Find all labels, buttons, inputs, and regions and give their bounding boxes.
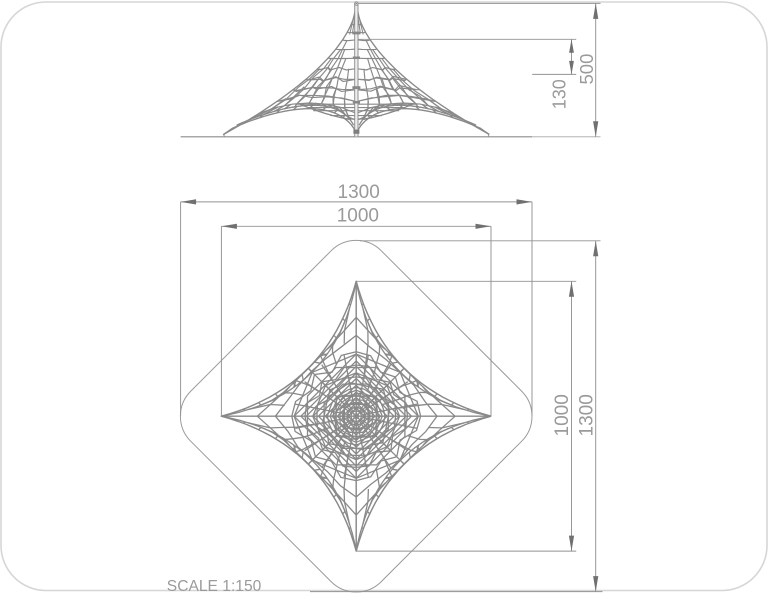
svg-text:500: 500 <box>576 54 597 85</box>
svg-text:1000: 1000 <box>337 206 379 227</box>
svg-text:130: 130 <box>549 79 569 109</box>
svg-text:1300: 1300 <box>576 394 597 436</box>
svg-text:1000: 1000 <box>552 394 573 436</box>
svg-text:1300: 1300 <box>338 182 380 203</box>
svg-text:SCALE 1:150: SCALE 1:150 <box>167 578 262 594</box>
